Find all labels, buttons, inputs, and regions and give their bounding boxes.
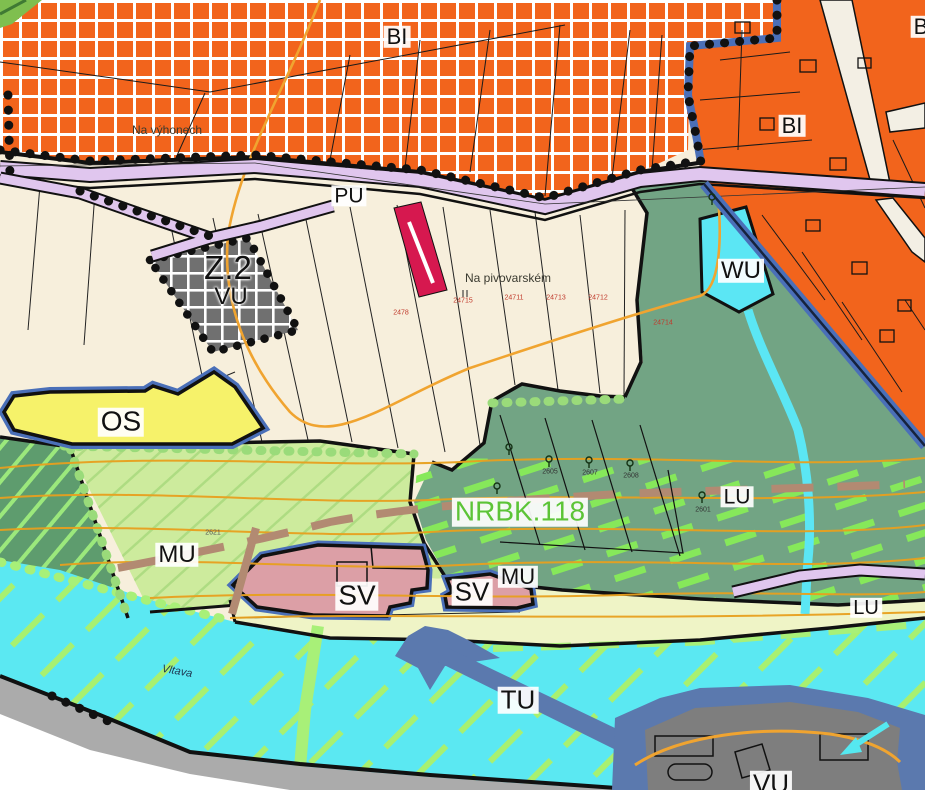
zone-label-sv-small: SV xyxy=(452,579,493,606)
zone-label-pu: PU xyxy=(331,185,366,206)
parcel-number: 24712 xyxy=(588,294,607,301)
zone-label-bi-right: BI xyxy=(779,115,806,137)
parcel-number: 24714 xyxy=(653,319,672,326)
zone-label-tu: TU xyxy=(498,687,539,714)
zone-label-sv-large: SV xyxy=(335,582,378,611)
zone-sv-large xyxy=(233,545,428,616)
parcel-number: 2621 xyxy=(205,529,221,536)
place-label-na-vyhonech: Na výhonech xyxy=(132,124,202,136)
zone-label-vu-top: VU xyxy=(214,285,247,309)
parcel-number: 2478 xyxy=(393,309,409,316)
zone-label-bi-corner: B xyxy=(911,16,925,38)
zone-label-z2: Z.2 xyxy=(204,251,252,285)
zoning-map: BI BI B PU Z.2 VU WU OS NRBK.118 LU LU M… xyxy=(0,0,925,790)
zone-label-vu-bottom: VU xyxy=(750,771,792,790)
zone-label-lu-mid: LU xyxy=(721,486,754,507)
zone-label-bi-top: BI xyxy=(384,26,411,48)
zone-label-wu: WU xyxy=(718,259,764,283)
parcel-number: 24715 xyxy=(453,297,472,304)
zone-label-os: OS xyxy=(98,408,144,437)
zone-label-nrbk: NRBK.118 xyxy=(452,498,588,527)
tree-number: 2601 xyxy=(695,506,711,513)
zone-label-lu-right: LU xyxy=(850,598,882,618)
tree-number: 2605 xyxy=(542,468,558,475)
place-label-na-pivovarskem: Na pivovarském xyxy=(465,272,551,284)
zone-label-mu-small: MU xyxy=(498,566,538,588)
tree-number: 2608 xyxy=(623,472,639,479)
parcel-number: 24713 xyxy=(546,294,565,301)
tree-number: 2607 xyxy=(582,469,598,476)
zone-label-mu-left: MU xyxy=(155,543,198,567)
parcel-number: 24711 xyxy=(505,294,524,301)
